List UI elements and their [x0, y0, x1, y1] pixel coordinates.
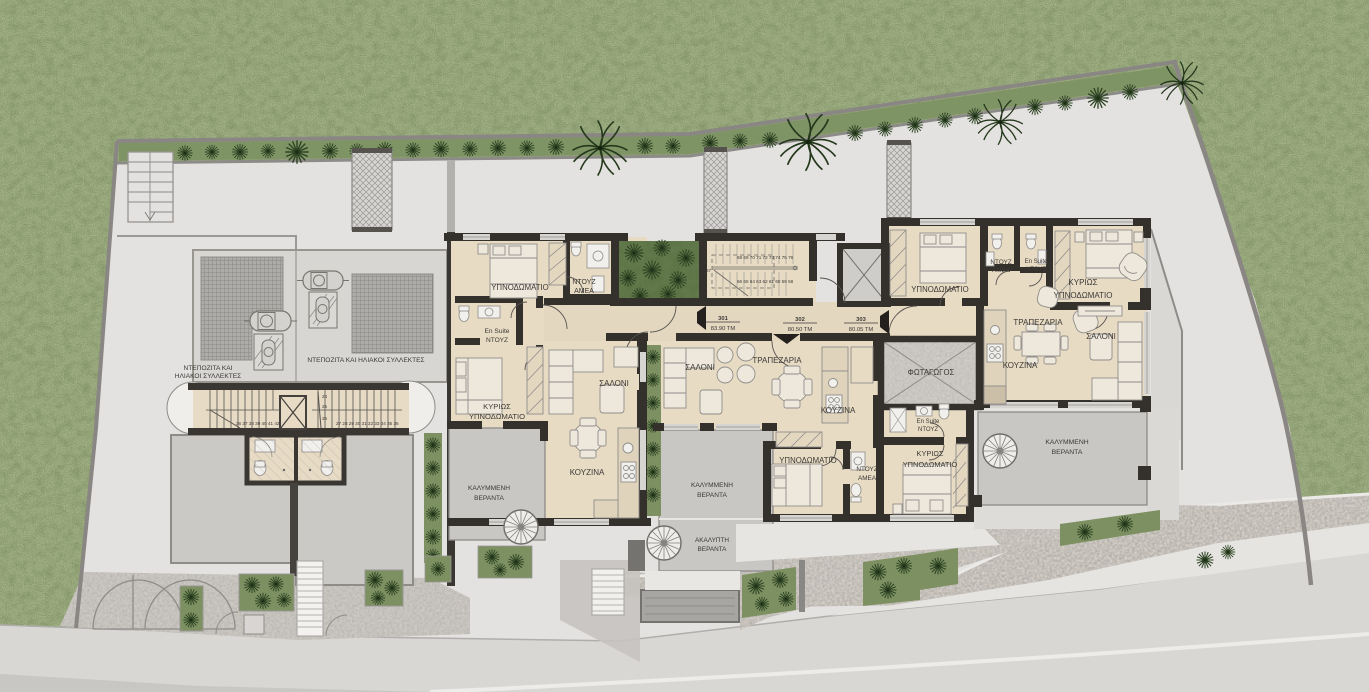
svg-text:ΤΡΑΠΕΖΑΡΙΑ: ΤΡΑΠΕΖΑΡΙΑ — [1013, 318, 1063, 327]
svg-text:ΒΕΡΑΝΤΑ: ΒΕΡΑΝΤΑ — [698, 546, 728, 553]
svg-text:24: 24 — [322, 394, 328, 399]
svg-text:En Suite: En Suite — [917, 419, 940, 425]
svg-text:ΑΜΕΑ: ΑΜΕΑ — [992, 267, 1011, 274]
svg-text:ΚΟΥΖΙΝΑ: ΚΟΥΖΙΝΑ — [570, 468, 605, 477]
svg-text:ΚΥΡΙΩΣ: ΚΥΡΙΩΣ — [1068, 278, 1097, 287]
svg-text:23 22 21 20 19: 23 22 21 20 19 — [332, 384, 363, 389]
svg-text:ΚΑΛΥΜΜΕΝΗ: ΚΑΛΥΜΜΕΝΗ — [691, 482, 733, 489]
svg-text:ΚΑΛΥΜΜΕΝΗ: ΚΑΛΥΜΜΕΝΗ — [468, 485, 510, 492]
svg-text:68 69 70 71 72 73 74 75 76: 68 69 70 71 72 73 74 75 76 — [737, 255, 794, 260]
svg-text:ΥΠΝΟΔΩΜΑΤΙΟ: ΥΠΝΟΔΩΜΑΤΙΟ — [469, 412, 525, 421]
svg-text:ΒΕΡΑΝΤΑ: ΒΕΡΑΝΤΑ — [474, 495, 504, 502]
svg-text:ΥΠΝΟΔΩΜΑΤΙΟ: ΥΠΝΟΔΩΜΑΤΙΟ — [911, 285, 969, 294]
svg-text:ΝΤΕΠΟΖΙΤΑ ΚΑΙ ΗΛΙΑΚΟΙ ΣΥΛΛΕΚΤΕ: ΝΤΕΠΟΖΙΤΑ ΚΑΙ ΗΛΙΑΚΟΙ ΣΥΛΛΕΚΤΕΣ — [307, 357, 424, 364]
svg-text:45: 45 — [264, 386, 270, 391]
svg-text:302: 302 — [795, 317, 805, 323]
svg-text:301: 301 — [718, 316, 728, 322]
svg-text:ΚΥΡΙΩΣ: ΚΥΡΙΩΣ — [483, 402, 511, 411]
svg-text:ΝΤΟΥΖ: ΝΤΟΥΖ — [572, 279, 596, 286]
svg-text:26: 26 — [322, 416, 328, 421]
svg-text:25: 25 — [322, 404, 328, 409]
svg-text:ΥΠΝΟΔΩΜΑΤΙΟ: ΥΠΝΟΔΩΜΑΤΙΟ — [1053, 291, 1112, 300]
svg-text:ΝΤΟΥΖ: ΝΤΟΥΖ — [486, 337, 508, 344]
svg-text:ΤΡΑΠΕΖΑΡΙΑ: ΤΡΑΠΕΖΑΡΙΑ — [752, 356, 802, 365]
svg-text:ΣΑΛΟΝΙ: ΣΑΛΟΝΙ — [685, 363, 715, 372]
svg-text:ΑΚΑΛΥΠΤΗ: ΑΚΑΛΥΠΤΗ — [695, 537, 729, 544]
svg-text:ΚΟΥΖΙΝΑ: ΚΟΥΖΙΝΑ — [821, 406, 856, 415]
svg-text:303: 303 — [856, 317, 866, 323]
svg-text:83.90 ΤΜ: 83.90 ΤΜ — [711, 326, 736, 332]
svg-text:ΣΑΛΟΝΙ: ΣΑΛΟΝΙ — [599, 379, 629, 388]
svg-text:ΑΜΕΑ: ΑΜΕΑ — [858, 475, 877, 482]
svg-text:80.50 ΤΜ: 80.50 ΤΜ — [788, 327, 813, 333]
svg-text:ΗΛΙΑΚΟΙ ΣΥΛΛΕΚΤΕΣ: ΗΛΙΑΚΟΙ ΣΥΛΛΕΚΤΕΣ — [175, 373, 241, 380]
svg-text:53 52 51 50 49 48 47 46: 53 52 51 50 49 48 47 46 — [234, 386, 284, 391]
svg-text:ΥΠΝΟΔΩΜΑΤΙΟ: ΥΠΝΟΔΩΜΑΤΙΟ — [903, 460, 958, 469]
svg-text:ΝΤΟΥΖ: ΝΤΟΥΖ — [990, 259, 1011, 266]
svg-text:ΝΤΟΥΖ: ΝΤΟΥΖ — [918, 427, 938, 433]
svg-text:ΒΕΡΑΝΤΑ: ΒΕΡΑΝΤΑ — [697, 492, 727, 499]
svg-text:67: 67 — [706, 268, 712, 273]
svg-text:ΝΤΟΥΖ: ΝΤΟΥΖ — [856, 466, 877, 473]
svg-text:ΦΩΤΑΓΩΓΟΣ: ΦΩΤΑΓΩΓΟΣ — [908, 368, 955, 377]
svg-text:27 28 29 30 31 32 33 34 35 36: 27 28 29 30 31 32 33 34 35 36 — [336, 421, 399, 426]
svg-text:ΝΤΕΠΟΖΙΤΑ ΚΑΙ: ΝΤΕΠΟΖΙΤΑ ΚΑΙ — [184, 365, 233, 372]
svg-text:En Suite: En Suite — [485, 328, 510, 335]
svg-text:En Suite: En Suite — [1025, 259, 1048, 265]
svg-text:66 65 64 63 62 61 60 59 58: 66 65 64 63 62 61 60 59 58 — [737, 279, 794, 284]
svg-text:ΥΠΝΟΔΩΜΑΤΙΟ: ΥΠΝΟΔΩΜΑΤΙΟ — [779, 456, 837, 465]
svg-text:ΣΑΛΟΝΙ: ΣΑΛΟΝΙ — [1086, 332, 1116, 341]
svg-text:80.05 ΤΜ: 80.05 ΤΜ — [849, 327, 874, 333]
svg-text:ΚΟΥΖΙΝΑ: ΚΟΥΖΙΝΑ — [1003, 361, 1038, 370]
svg-text:ΥΠΝΟΔΩΜΑΤΙΟ: ΥΠΝΟΔΩΜΑΤΙΟ — [491, 283, 549, 292]
svg-text:ΝΤΟΥΖ: ΝΤΟΥΖ — [1026, 267, 1046, 273]
svg-text:36 37 38 39 40 41 42: 36 37 38 39 40 41 42 — [236, 421, 280, 426]
svg-text:ΑΜΕΑ: ΑΜΕΑ — [574, 288, 594, 295]
svg-text:ΚΑΛΥΜΜΕΝΗ: ΚΑΛΥΜΜΕΝΗ — [1045, 439, 1088, 446]
svg-text:ΚΥΡΙΩΣ: ΚΥΡΙΩΣ — [917, 449, 944, 458]
svg-text:ΒΕΡΑΝΤΑ: ΒΕΡΑΝΤΑ — [1052, 449, 1083, 456]
